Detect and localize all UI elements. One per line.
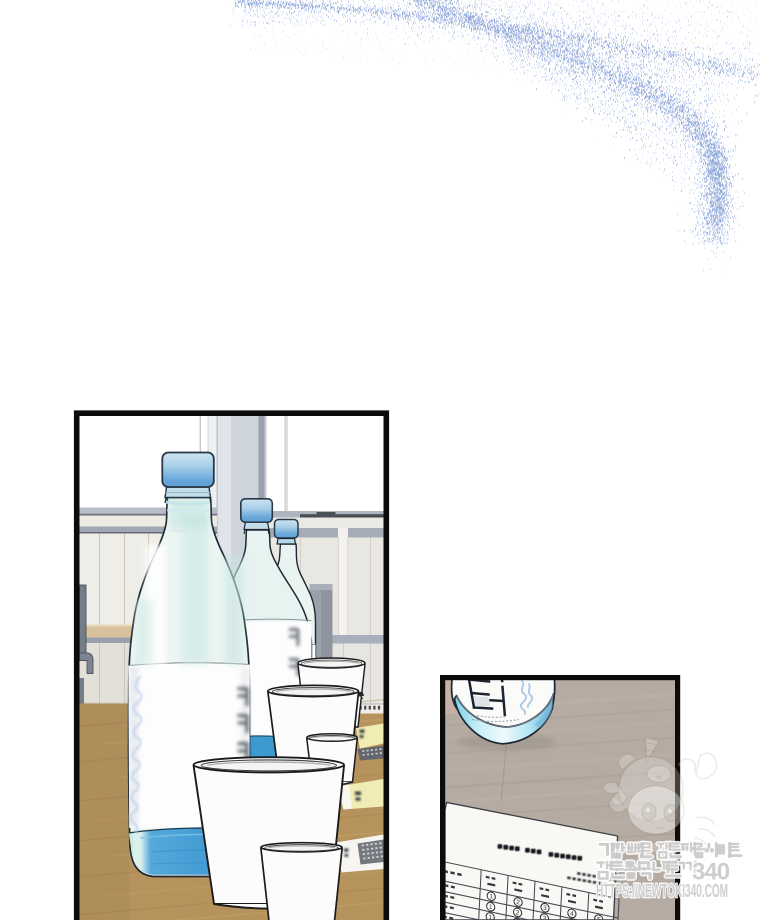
svg-text:5: 5 [597, 916, 601, 920]
svg-text:HTTPS://NEWTOKI340.COM: HTTPS://NEWTOKI340.COM [596, 880, 728, 901]
svg-text:3: 3 [543, 915, 547, 920]
